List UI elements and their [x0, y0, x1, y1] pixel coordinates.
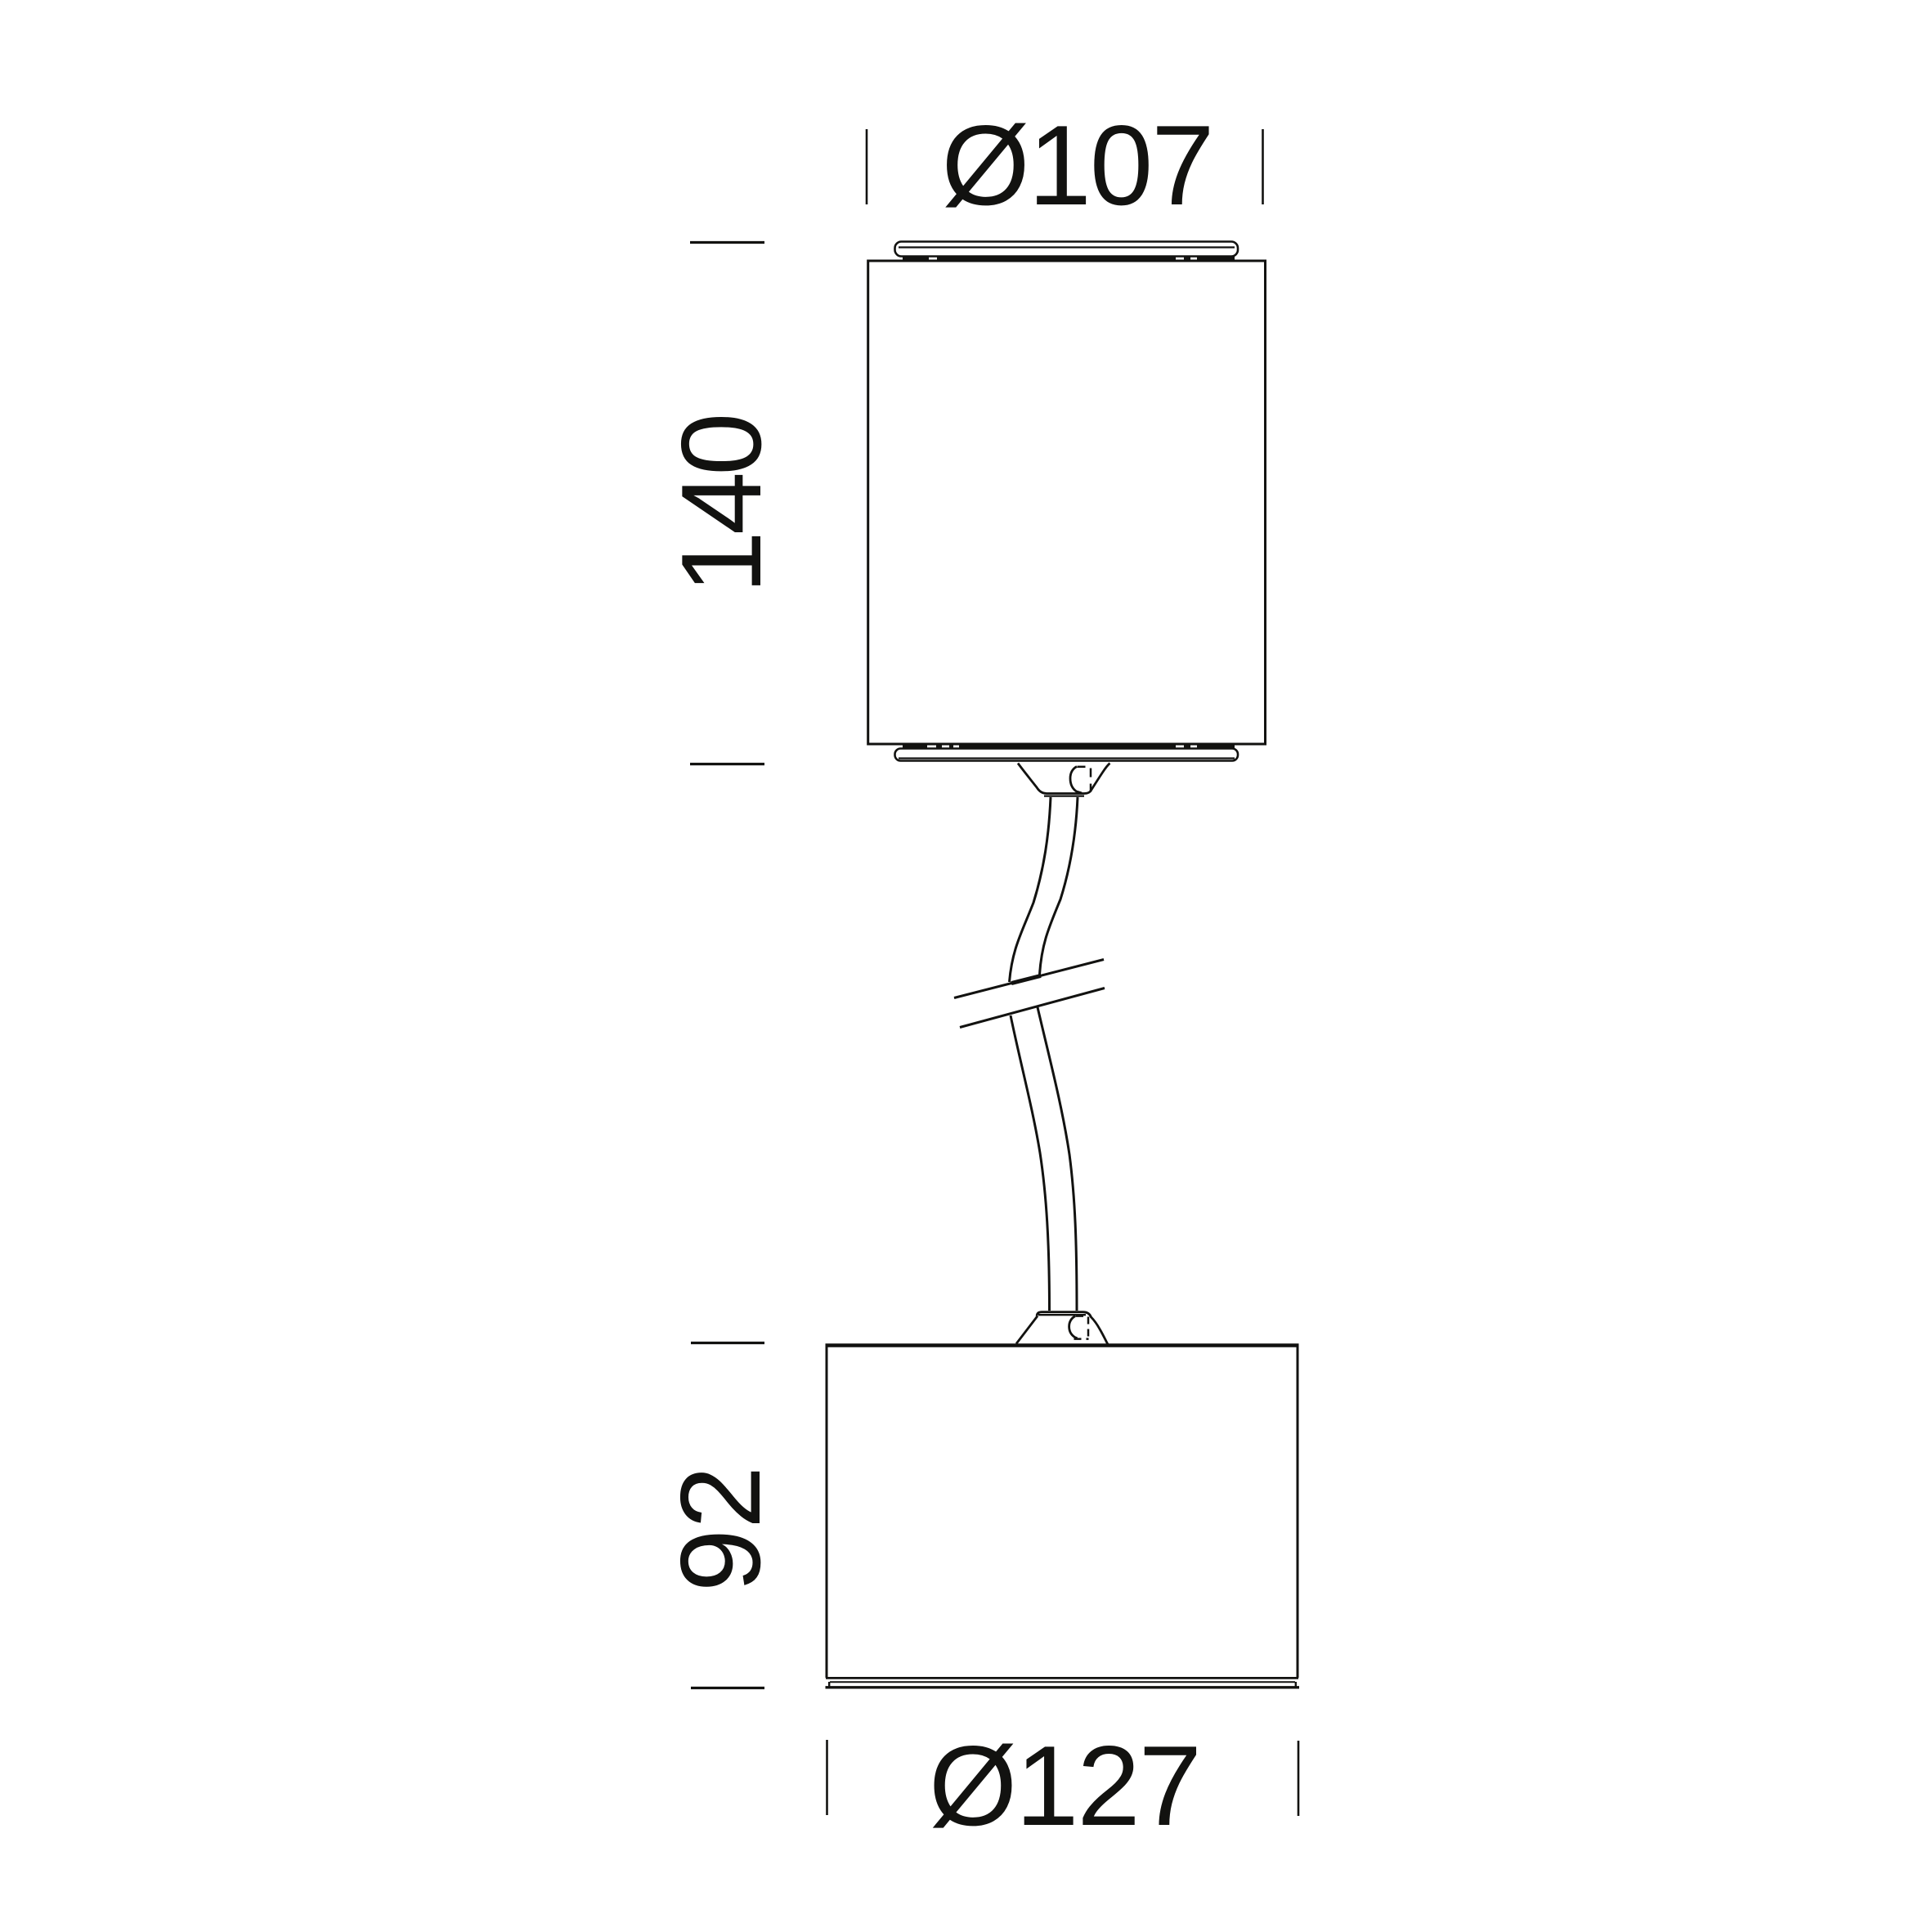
- svg-text:Ø107: Ø107: [941, 102, 1213, 229]
- svg-text:92: 92: [657, 1466, 784, 1593]
- svg-text:140: 140: [658, 417, 785, 594]
- svg-text:Ø127: Ø127: [929, 1723, 1200, 1849]
